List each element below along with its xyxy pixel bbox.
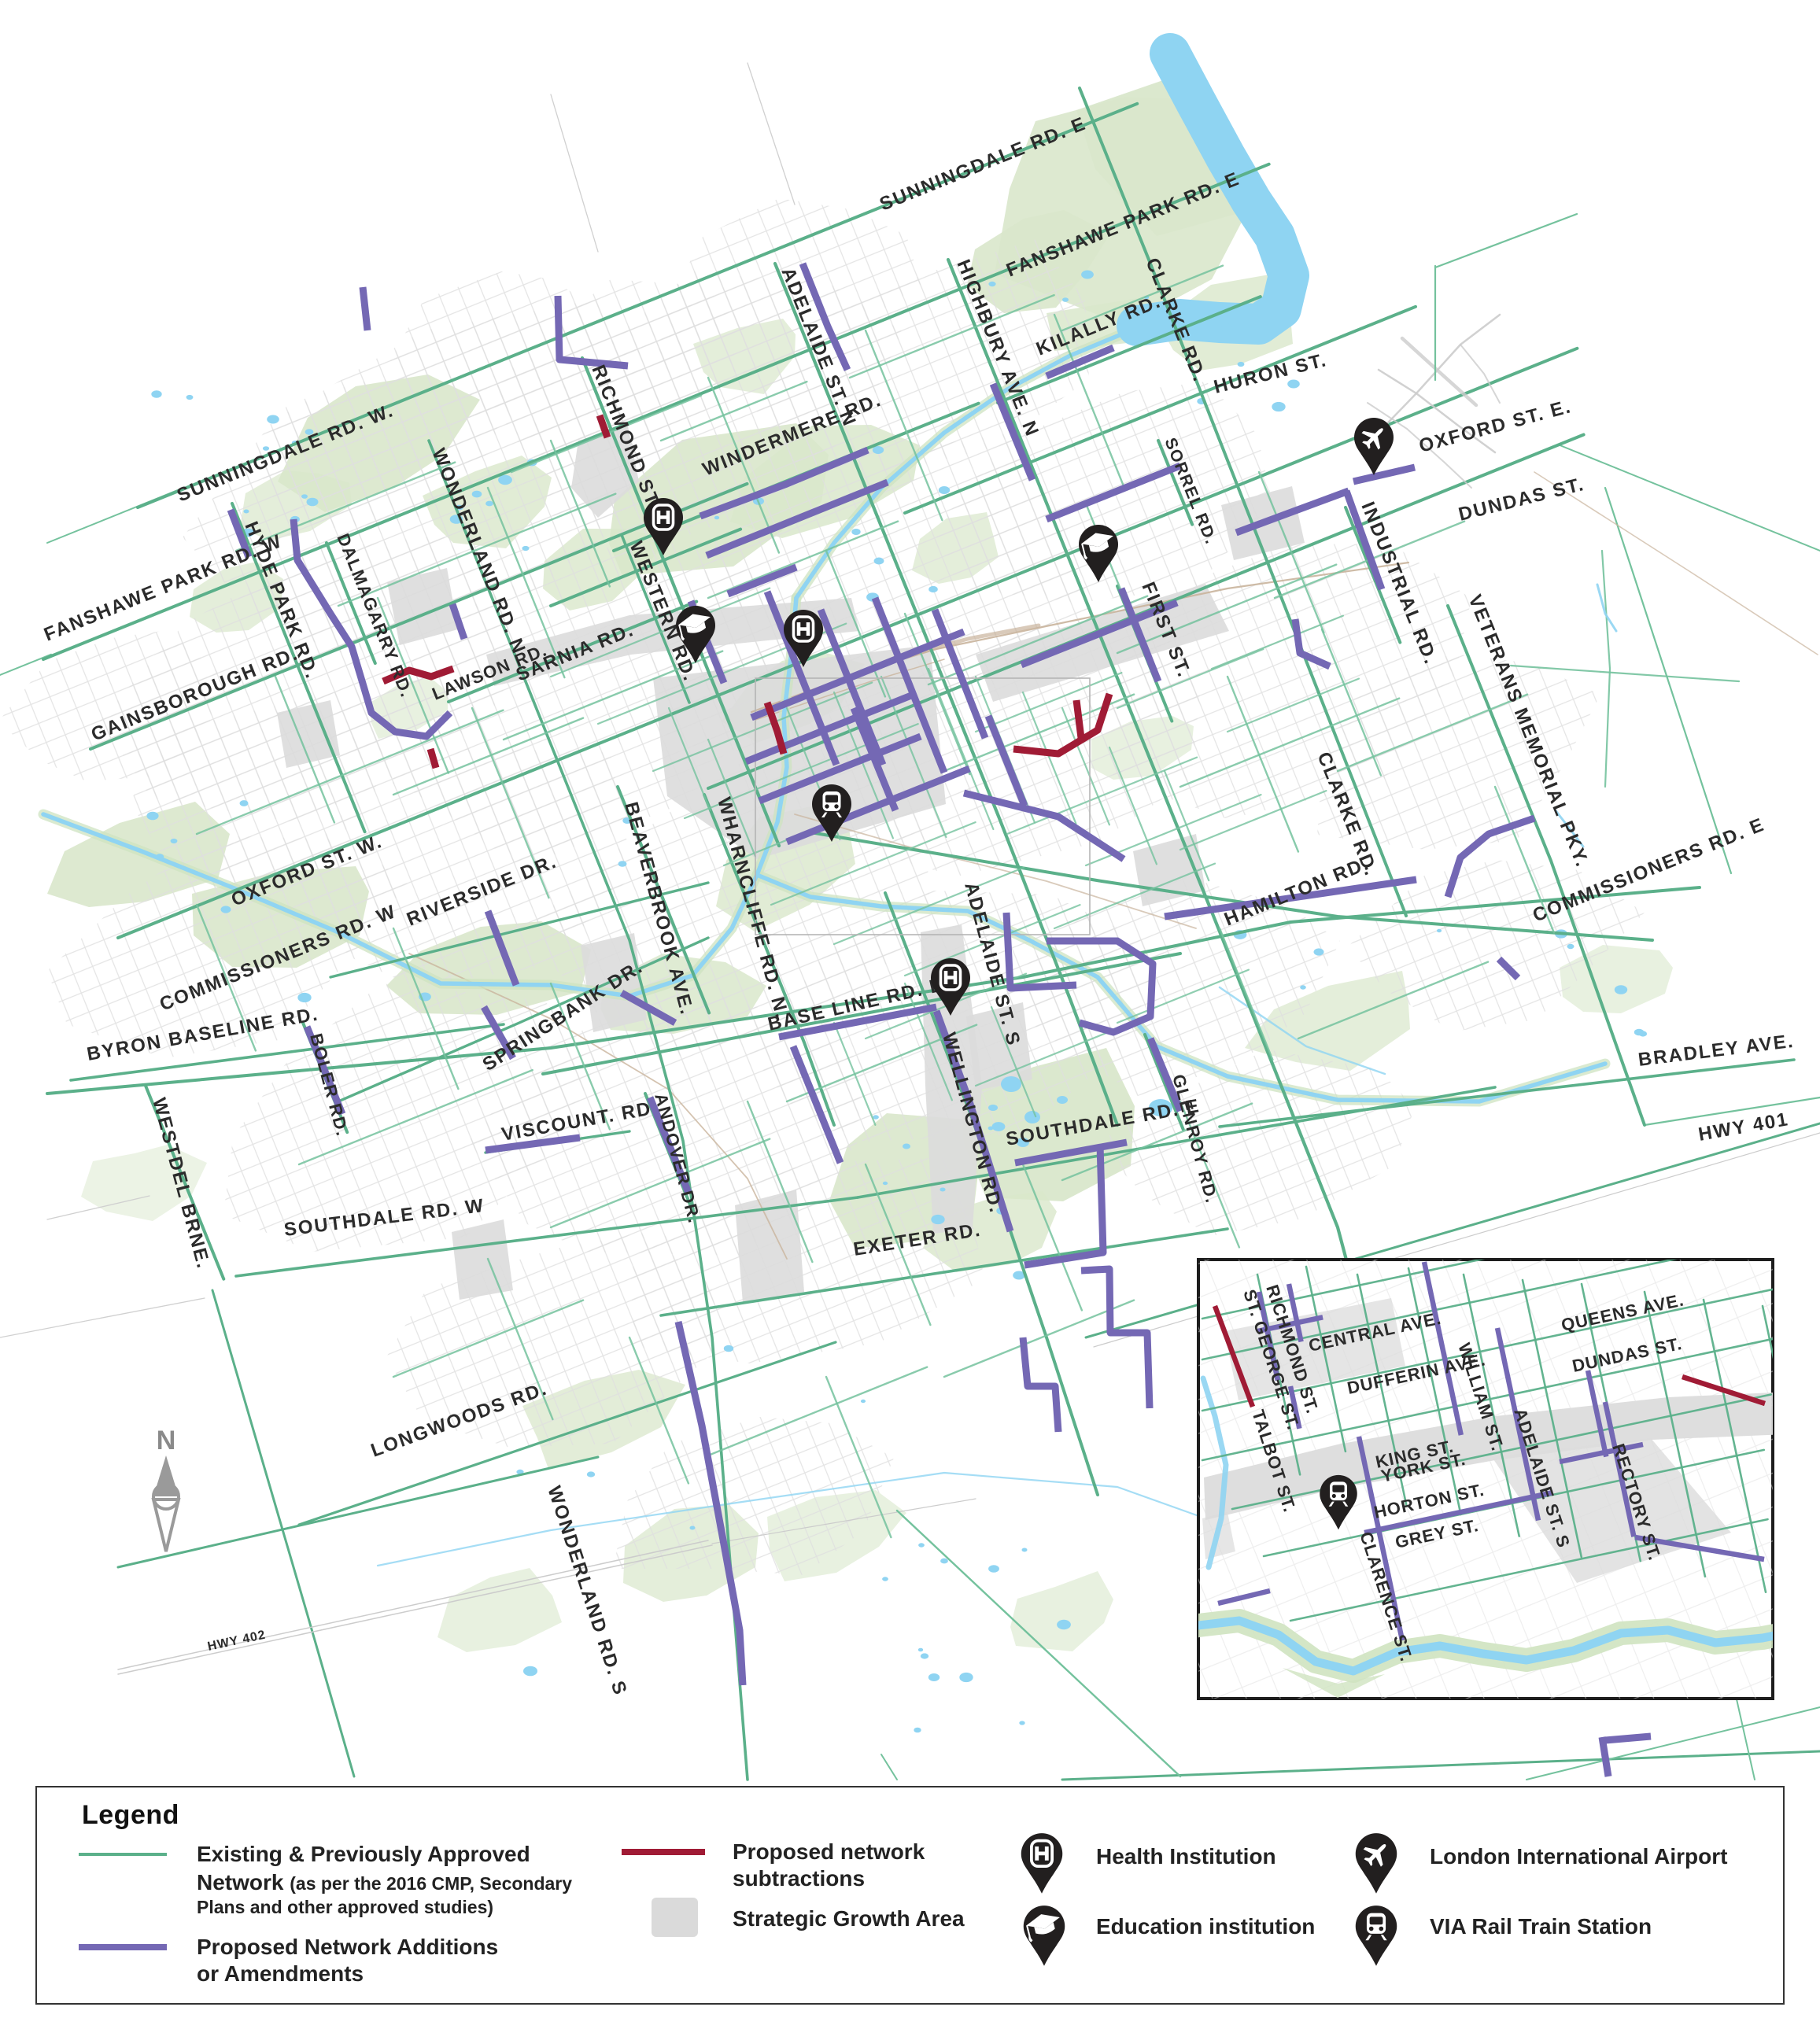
svg-text:VIA Rail Train Station: VIA Rail Train Station — [1430, 1914, 1652, 1939]
svg-text:Existing & Previously Approved: Existing & Previously Approved — [197, 1842, 530, 1866]
svg-text:Education institution: Education institution — [1096, 1914, 1315, 1939]
svg-text:Strategic Growth Area: Strategic Growth Area — [733, 1906, 965, 1931]
svg-text:Network (as per the 2016 CMP,: Network (as per the 2016 CMP, Secondary — [197, 1870, 572, 1894]
svg-text:Health Institution: Health Institution — [1096, 1844, 1276, 1869]
svg-text:or Amendments: or Amendments — [197, 1961, 364, 1986]
svg-text:London International Airport: London International Airport — [1430, 1844, 1727, 1869]
svg-text:subtractions: subtractions — [733, 1866, 865, 1891]
svg-text:Plans and other approved studi: Plans and other approved studies) — [197, 1897, 493, 1917]
svg-text:Legend: Legend — [82, 1800, 179, 1830]
svg-text:Proposed Network Additions: Proposed Network Additions — [197, 1935, 498, 1959]
svg-text:Proposed network: Proposed network — [733, 1839, 925, 1864]
svg-text:N: N — [157, 1426, 176, 1455]
